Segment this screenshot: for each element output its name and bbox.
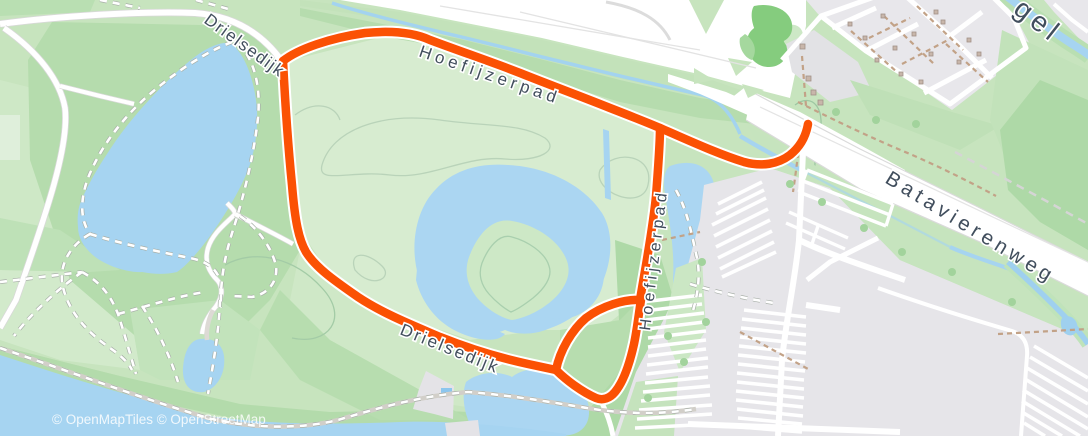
svg-text:© OpenMapTiles © OpenStreetMap: © OpenMapTiles © OpenStreetMap	[52, 412, 266, 427]
